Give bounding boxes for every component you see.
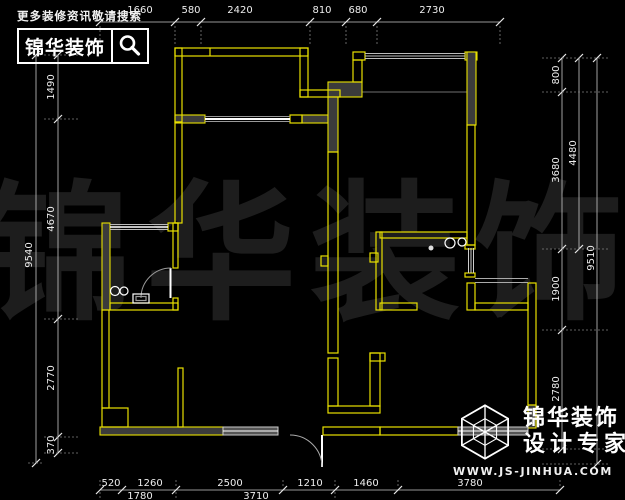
dim-left-total: 9540: [24, 242, 35, 267]
footer-brand-name: 锦华装饰: [523, 406, 625, 432]
wall-cores: [100, 52, 536, 435]
dim-bottom1-4: 1460: [353, 478, 378, 489]
living-room-window: [365, 54, 465, 59]
dim-top-4: 680: [348, 5, 367, 16]
dim-right-mid: 4480: [568, 140, 579, 165]
bottom-right-branding: 锦华装饰 设计专家 WWW.JS-JINHUA.COM: [453, 400, 625, 478]
doors: [141, 268, 322, 467]
top-left-branding: 更多装修资讯敬请搜索 锦华装饰: [17, 8, 149, 64]
entrance-door-arc: [290, 435, 322, 467]
dim-right-1: 3680: [551, 157, 562, 182]
dim-right-total: 9510: [586, 245, 597, 270]
stove-burner-icon: [120, 287, 128, 295]
brand-search-box: 锦华装饰: [17, 28, 149, 64]
search-icon: [113, 30, 147, 62]
dim-right-2: 1900: [551, 276, 562, 301]
brand-tagline: 更多装修资讯敬请搜索: [17, 8, 149, 24]
footer-slogan: 设计专家: [523, 432, 625, 458]
dim-bottom1-0: 520: [101, 478, 120, 489]
brand-name: 锦华装饰: [19, 30, 111, 62]
dim-left-0: 1490: [46, 74, 57, 99]
dim-left-3: 370: [46, 435, 57, 454]
dim-right-0: 800: [551, 65, 562, 84]
dim-bottom1-3: 1210: [297, 478, 322, 489]
dim-top-2: 2420: [227, 5, 252, 16]
dim-bottom1-1: 1260: [137, 478, 162, 489]
cube-logo-icon: [453, 400, 517, 464]
stove-burner-icon: [111, 287, 120, 296]
dim-bottom1-5: 3780: [457, 478, 482, 489]
footer-website-url: WWW.JS-JINHUA.COM: [453, 465, 625, 478]
bottom-window-left: [223, 427, 278, 435]
floorplan-canvas: 锦华装饰: [0, 0, 625, 500]
dim-bottom2-1: 3710: [243, 491, 268, 500]
bathroom-fixture-icon: [458, 238, 466, 246]
dim-top-5: 2730: [419, 5, 444, 16]
dim-bottom1-2: 2500: [217, 478, 242, 489]
dim-bottom2-0: 1780: [127, 491, 152, 500]
floor-drain-icon: [429, 246, 434, 251]
dim-left-2: 2770: [46, 365, 57, 390]
bay-window-line: [475, 279, 528, 283]
dim-left-1: 4670: [46, 206, 57, 231]
bathroom-window: [469, 248, 474, 273]
dim-top-1: 580: [181, 5, 200, 16]
fixtures: [111, 238, 467, 303]
bathroom-fixture-icon: [445, 238, 455, 248]
dim-right-3: 2780: [551, 376, 562, 401]
dim-top-3: 810: [312, 5, 331, 16]
